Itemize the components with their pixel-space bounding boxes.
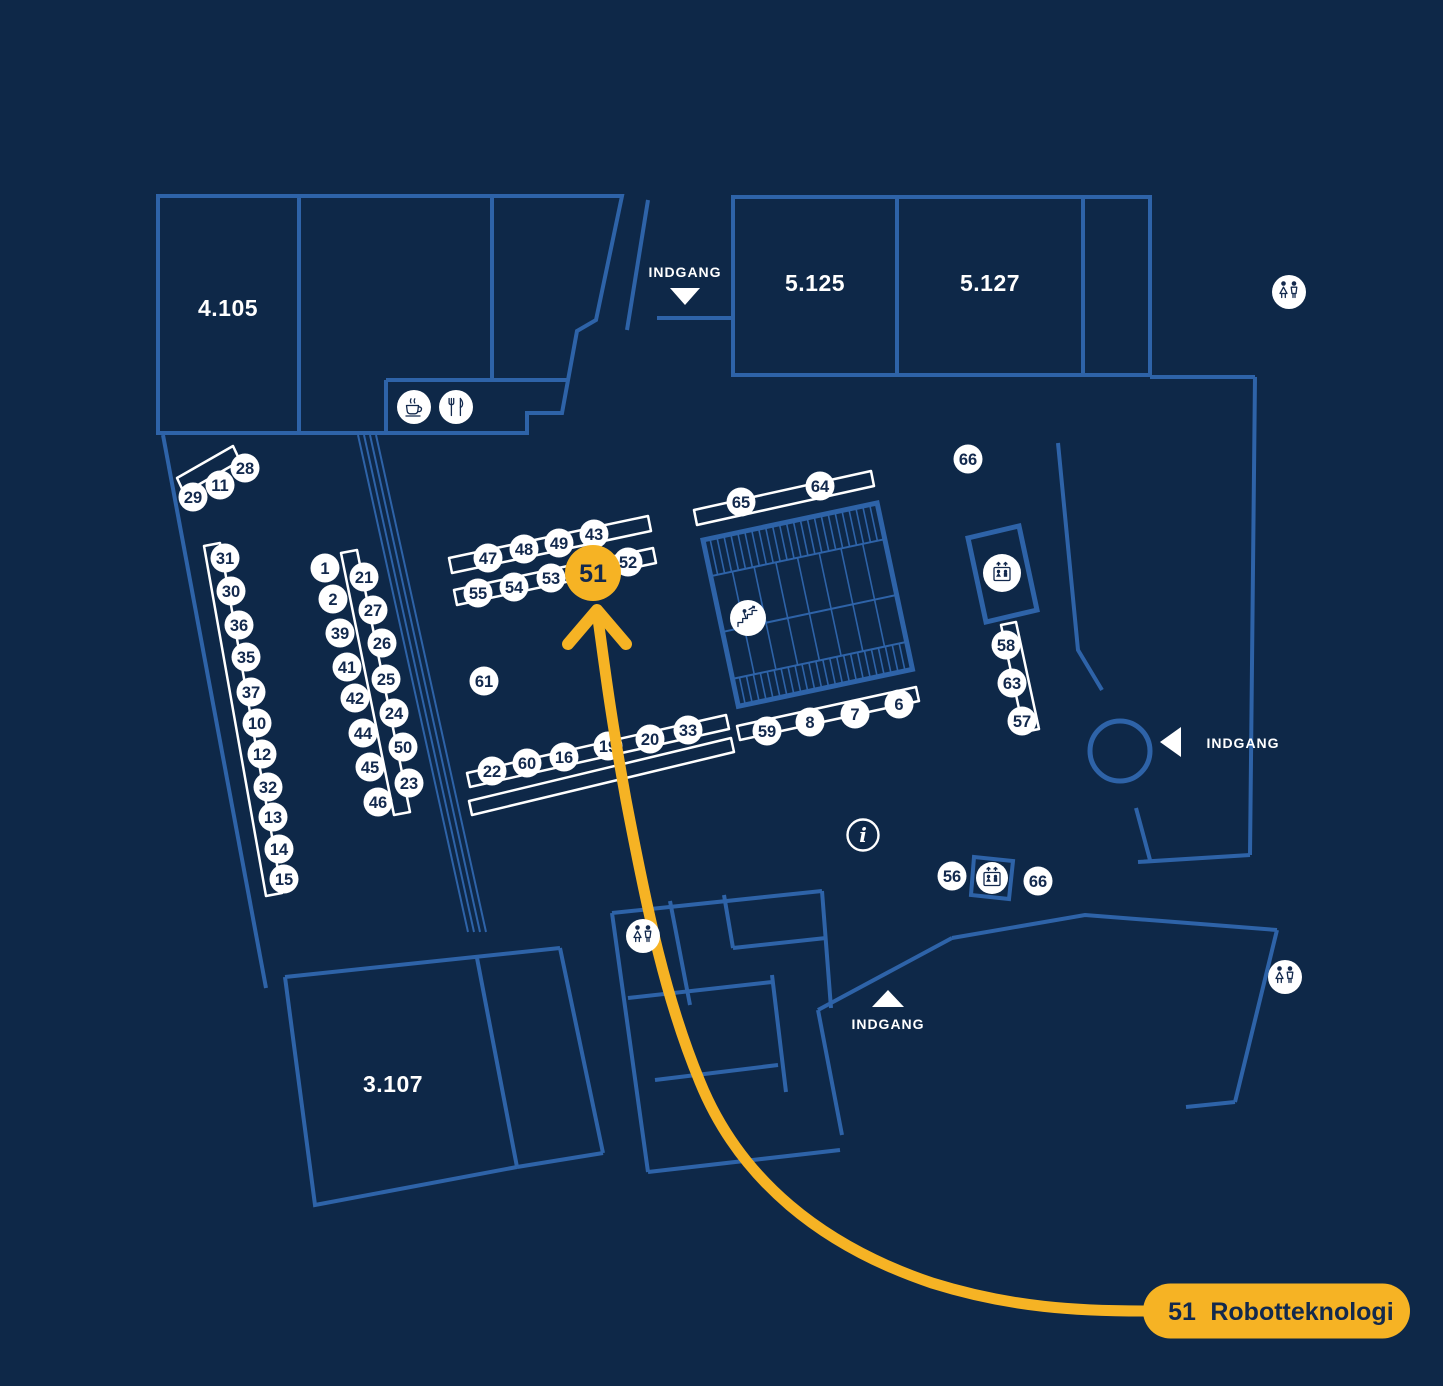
svg-text:58: 58 (997, 637, 1015, 655)
entrance-left: INDGANG (1160, 727, 1280, 757)
marker-66[interactable]: 66 (1024, 867, 1053, 896)
entrance-arrow-icon (872, 990, 904, 1007)
svg-text:44: 44 (354, 725, 373, 743)
marker-26[interactable]: 26 (368, 629, 397, 658)
entrance-up: INDGANG (851, 990, 924, 1032)
marker-23[interactable]: 23 (395, 769, 424, 798)
svg-text:15: 15 (275, 871, 293, 889)
room-label-3.107: 3.107 (363, 1071, 423, 1097)
entrance-arrow-icon (1160, 727, 1181, 757)
svg-text:30: 30 (222, 583, 240, 601)
floorplan-map: 2911283130363537101232131415123941424445… (0, 0, 1443, 1386)
svg-text:22: 22 (483, 763, 501, 781)
marker-64[interactable]: 64 (806, 472, 835, 501)
room-label-5.125: 5.125 (785, 270, 845, 296)
svg-text:2: 2 (328, 591, 337, 609)
svg-text:66: 66 (959, 451, 977, 469)
svg-text:39: 39 (331, 625, 349, 643)
toilet-icon (1272, 275, 1306, 309)
marker-25[interactable]: 25 (372, 665, 401, 694)
building-walls (158, 196, 1277, 1205)
svg-text:65: 65 (732, 494, 750, 512)
toilet-icon (626, 919, 660, 953)
markers-layer: 2911283130363537101232131415123941424445… (179, 445, 1053, 896)
svg-text:1: 1 (320, 560, 329, 578)
marker-36[interactable]: 36 (225, 611, 254, 640)
svg-text:33: 33 (679, 722, 697, 740)
marker-42[interactable]: 42 (341, 684, 370, 713)
marker-6[interactable]: 6 (885, 690, 914, 719)
marker-61[interactable]: 61 (470, 667, 499, 696)
restaurant-icon (439, 390, 473, 424)
marker-14[interactable]: 14 (265, 835, 294, 864)
entrances-layer: INDGANGINDGANGINDGANG (648, 264, 1279, 1032)
room-label-4.105: 4.105 (198, 295, 258, 321)
marker-28[interactable]: 28 (231, 454, 260, 483)
svg-text:64: 64 (811, 478, 830, 496)
svg-text:32: 32 (259, 779, 277, 797)
icons-layer: i (397, 275, 1306, 994)
svg-text:13: 13 (264, 809, 282, 827)
marker-22[interactable]: 22 (478, 757, 507, 786)
elevator-icon (983, 554, 1021, 592)
svg-text:10: 10 (248, 715, 266, 733)
marker-33[interactable]: 33 (674, 716, 703, 745)
marker-56[interactable]: 56 (938, 862, 967, 891)
roundabout-circle (1090, 721, 1150, 781)
svg-text:42: 42 (346, 690, 364, 708)
entrance-arrow-icon (670, 288, 700, 305)
svg-text:50: 50 (394, 739, 412, 757)
marker-13[interactable]: 13 (259, 803, 288, 832)
marker-27[interactable]: 27 (359, 596, 388, 625)
svg-text:21: 21 (355, 569, 373, 587)
svg-text:54: 54 (505, 579, 524, 597)
marker-54[interactable]: 54 (500, 573, 529, 602)
svg-text:63: 63 (1003, 675, 1021, 693)
marker-50[interactable]: 50 (389, 733, 418, 762)
svg-text:29: 29 (184, 489, 202, 507)
marker-43[interactable]: 43 (580, 520, 609, 549)
marker-37[interactable]: 37 (237, 678, 266, 707)
svg-text:27: 27 (364, 602, 382, 620)
marker-8[interactable]: 8 (796, 708, 825, 737)
svg-text:48: 48 (515, 541, 533, 559)
marker-59[interactable]: 59 (753, 717, 782, 746)
svg-text:53: 53 (542, 570, 560, 588)
marker-15[interactable]: 15 (270, 865, 299, 894)
svg-text:49: 49 (550, 535, 568, 553)
svg-text:26: 26 (373, 635, 391, 653)
svg-text:23: 23 (400, 775, 418, 793)
highlight-marker-51[interactable]: 51 (565, 545, 621, 601)
marker-35[interactable]: 35 (232, 643, 261, 672)
marker-53[interactable]: 53 (537, 564, 566, 593)
marker-48[interactable]: 48 (510, 535, 539, 564)
svg-text:24: 24 (385, 705, 404, 723)
marker-31[interactable]: 31 (211, 544, 240, 573)
svg-text:43: 43 (585, 526, 603, 544)
svg-text:37: 37 (242, 684, 260, 702)
svg-text:16: 16 (555, 749, 573, 767)
info-icon: i (848, 820, 879, 851)
svg-text:41: 41 (338, 659, 356, 677)
marker-21[interactable]: 21 (350, 563, 379, 592)
svg-text:55: 55 (469, 585, 487, 603)
svg-text:45: 45 (361, 759, 379, 777)
svg-text:31: 31 (216, 550, 234, 568)
legend-pill[interactable]: 51 Robotteknologi (1143, 1284, 1410, 1339)
marker-65[interactable]: 65 (727, 488, 756, 517)
marker-49[interactable]: 49 (545, 529, 574, 558)
legend-name: Robotteknologi (1210, 1298, 1393, 1326)
marker-30[interactable]: 30 (217, 577, 246, 606)
entrance-down: INDGANG (648, 264, 721, 305)
svg-text:60: 60 (518, 755, 536, 773)
svg-text:47: 47 (479, 550, 497, 568)
marker-47[interactable]: 47 (474, 544, 503, 573)
svg-text:20: 20 (641, 731, 659, 749)
stairs-icon (730, 600, 766, 636)
svg-text:52: 52 (619, 554, 637, 572)
marker-39[interactable]: 39 (326, 619, 355, 648)
marker-46[interactable]: 46 (364, 788, 393, 817)
legend-number: 51 (1168, 1298, 1196, 1326)
svg-text:6: 6 (894, 696, 903, 714)
svg-text:28: 28 (236, 460, 254, 478)
svg-text:46: 46 (369, 794, 387, 812)
route-path (597, 612, 1143, 1311)
svg-text:51: 51 (579, 560, 607, 588)
marker-11[interactable]: 11 (206, 471, 235, 500)
marker-57[interactable]: 57 (1008, 707, 1037, 736)
highlight-layer: 51 (565, 545, 621, 601)
marker-10[interactable]: 10 (243, 709, 272, 738)
coffee-icon (397, 390, 431, 424)
marker-16[interactable]: 16 (550, 743, 579, 772)
marker-20[interactable]: 20 (636, 725, 665, 754)
marker-1[interactable]: 1 (311, 554, 340, 583)
svg-text:i: i (859, 823, 867, 847)
marker-2[interactable]: 2 (319, 585, 348, 614)
svg-text:66: 66 (1029, 873, 1047, 891)
toilet-icon (1268, 960, 1302, 994)
svg-text:56: 56 (943, 868, 961, 886)
marker-12[interactable]: 12 (248, 740, 277, 769)
svg-text:14: 14 (270, 841, 289, 859)
marker-7[interactable]: 7 (841, 700, 870, 729)
marker-63[interactable]: 63 (998, 669, 1027, 698)
svg-text:36: 36 (230, 617, 248, 635)
entrance-label: INDGANG (648, 264, 721, 280)
marker-55[interactable]: 55 (464, 579, 493, 608)
entrance-label: INDGANG (851, 1016, 924, 1032)
svg-text:8: 8 (805, 714, 814, 732)
svg-text:57: 57 (1013, 713, 1031, 731)
auditorium-grid (703, 503, 912, 706)
marker-24[interactable]: 24 (380, 699, 409, 728)
marker-66[interactable]: 66 (954, 445, 983, 474)
svg-text:25: 25 (377, 671, 395, 689)
svg-text:7: 7 (850, 706, 859, 724)
svg-text:12: 12 (253, 746, 271, 764)
marker-45[interactable]: 45 (356, 753, 385, 782)
marker-32[interactable]: 32 (254, 773, 283, 802)
marker-41[interactable]: 41 (333, 653, 362, 682)
room-label-5.127: 5.127 (960, 270, 1020, 296)
marker-44[interactable]: 44 (349, 719, 378, 748)
marker-58[interactable]: 58 (992, 631, 1021, 660)
svg-text:11: 11 (211, 477, 228, 495)
entrance-label: INDGANG (1206, 735, 1279, 751)
marker-29[interactable]: 29 (179, 483, 208, 512)
svg-text:59: 59 (758, 723, 776, 741)
marker-60[interactable]: 60 (513, 749, 542, 778)
svg-text:61: 61 (475, 673, 493, 691)
elevator-icon (976, 862, 1008, 894)
svg-text:35: 35 (237, 649, 255, 667)
